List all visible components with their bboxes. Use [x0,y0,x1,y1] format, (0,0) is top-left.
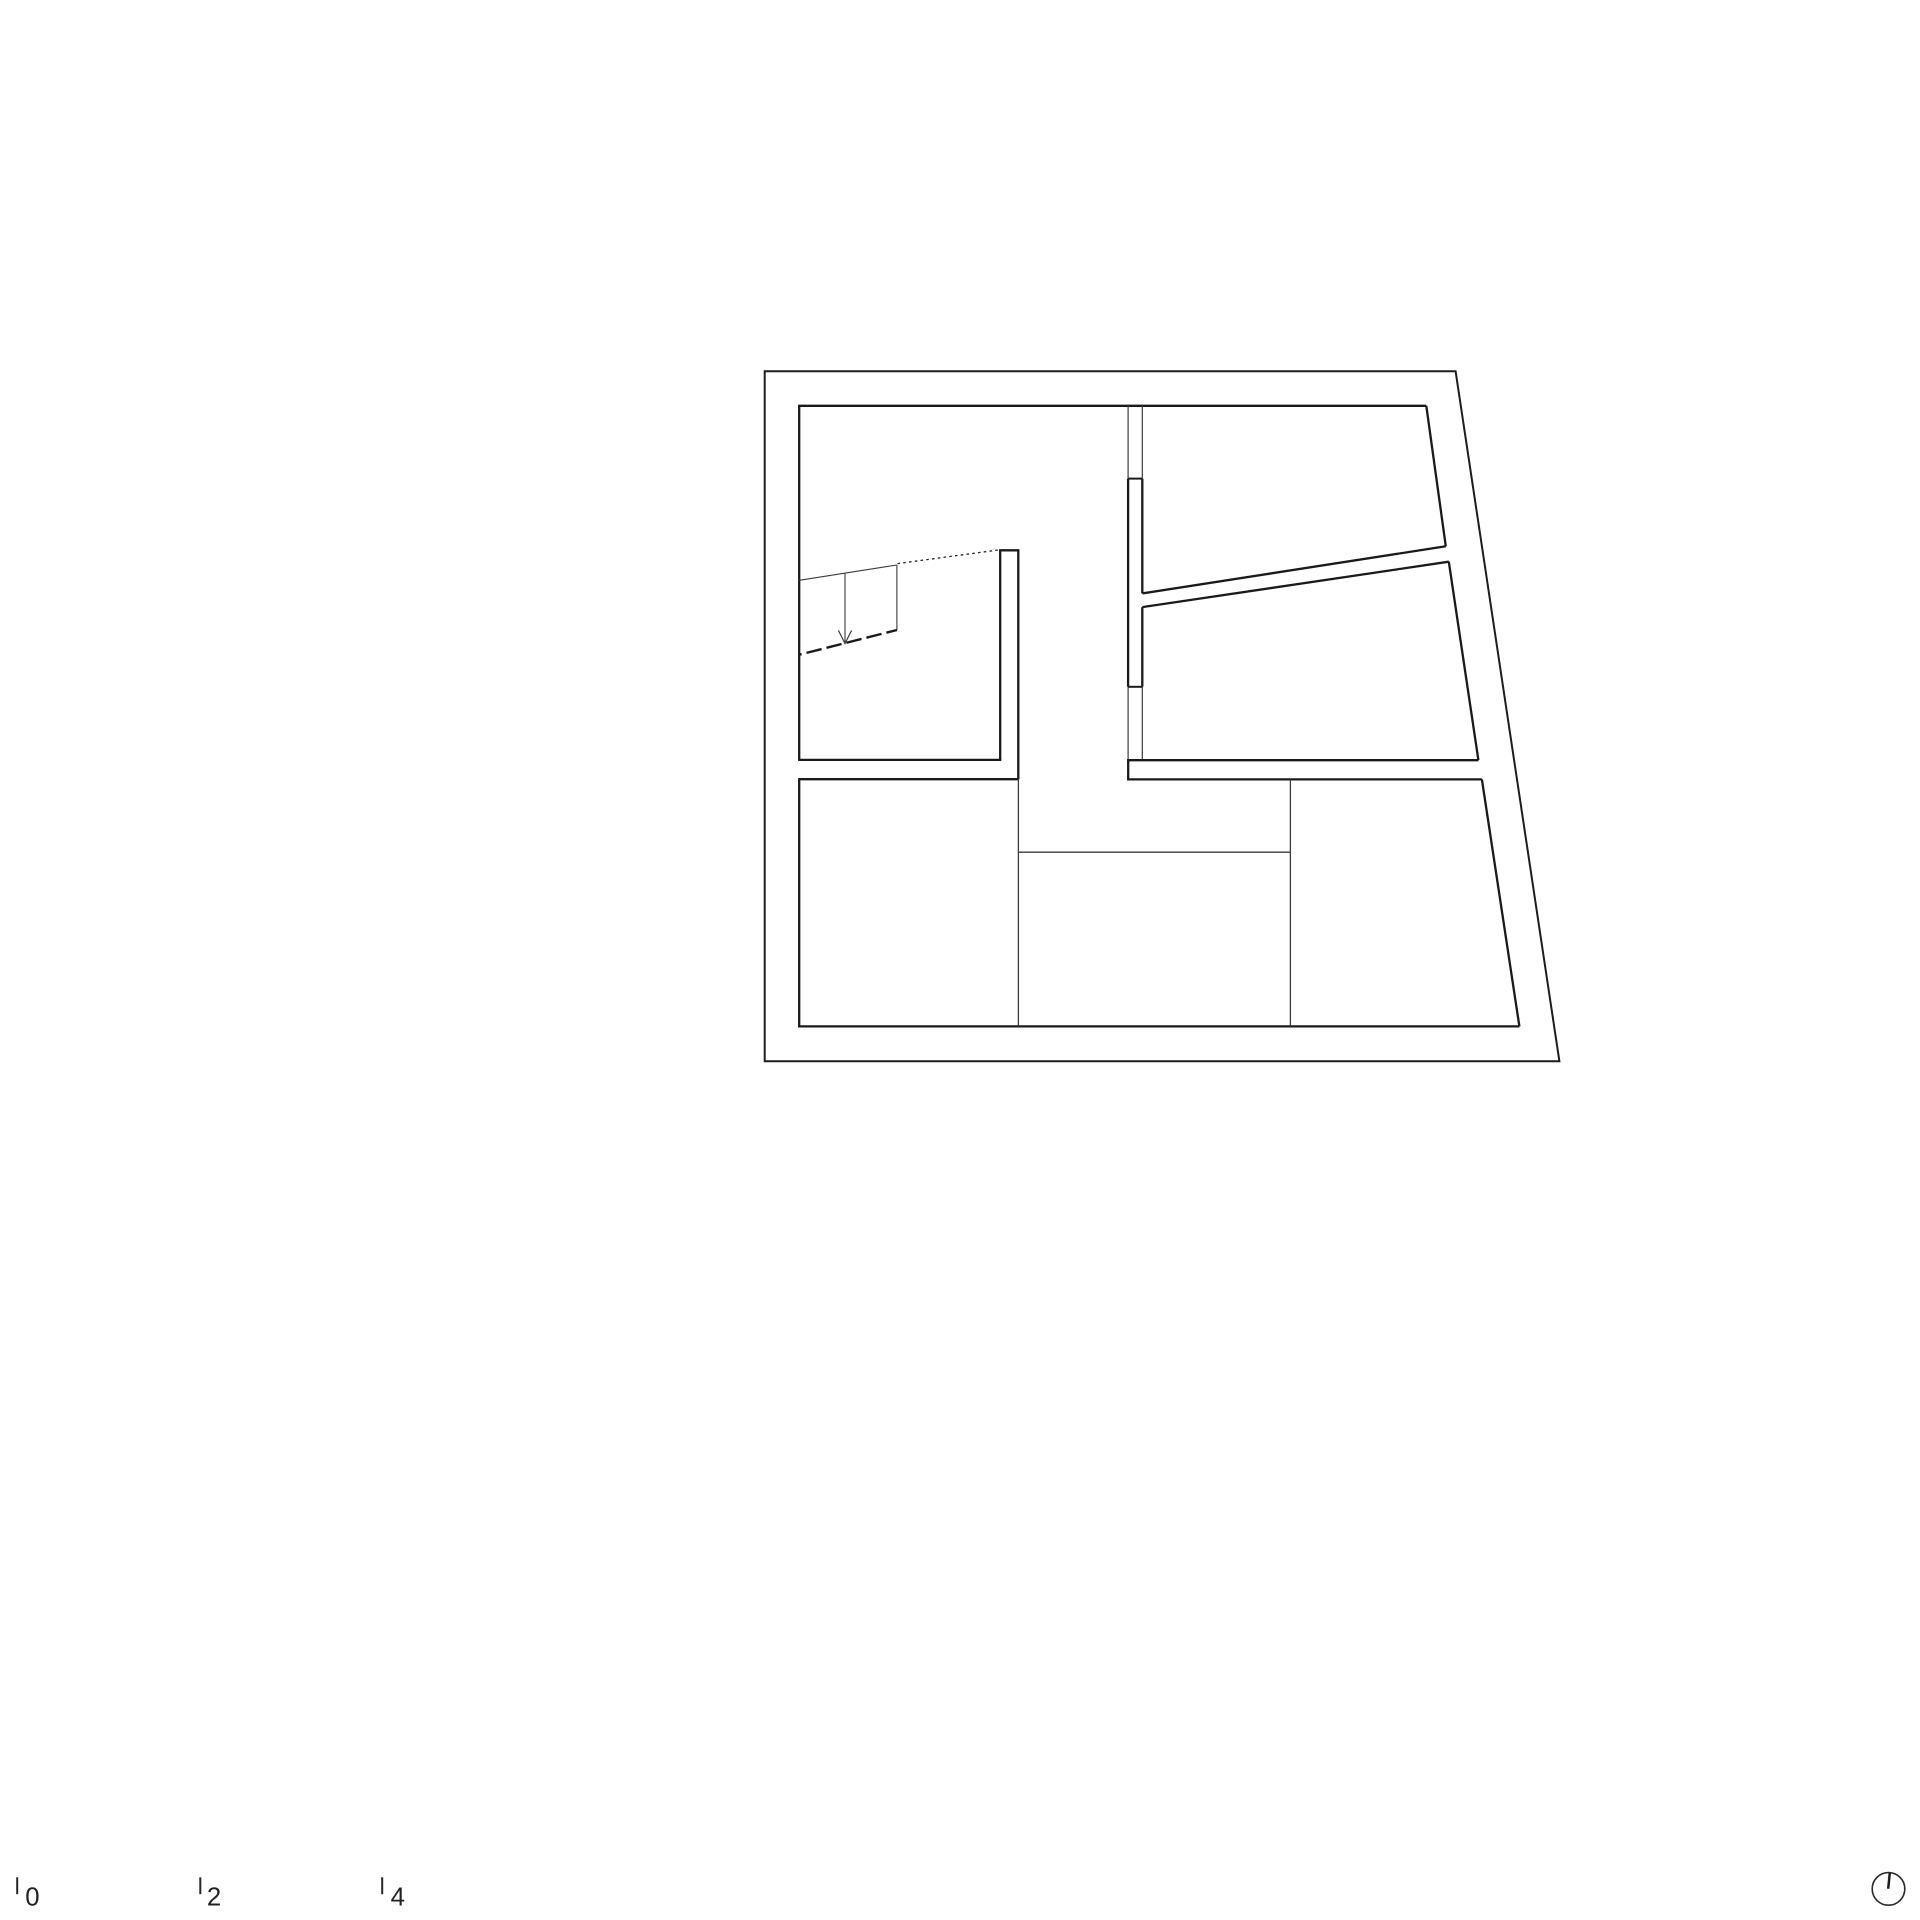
svg-text:0: 0 [25,1883,39,1911]
svg-text:4: 4 [391,1883,405,1911]
svg-text:2: 2 [207,1883,221,1911]
